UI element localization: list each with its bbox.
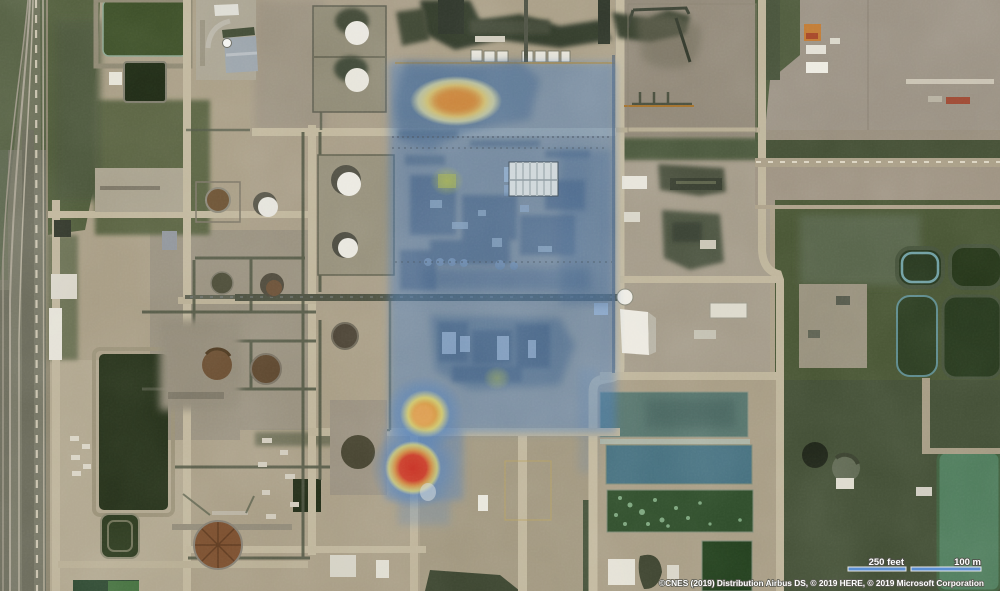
svg-text:©CNES (2019) Distribution Airb: ©CNES (2019) Distribution Airbus DS, © 2…	[659, 579, 984, 588]
svg-text:250 feet: 250 feet	[869, 557, 905, 568]
svg-text:100 m: 100 m	[954, 557, 981, 568]
